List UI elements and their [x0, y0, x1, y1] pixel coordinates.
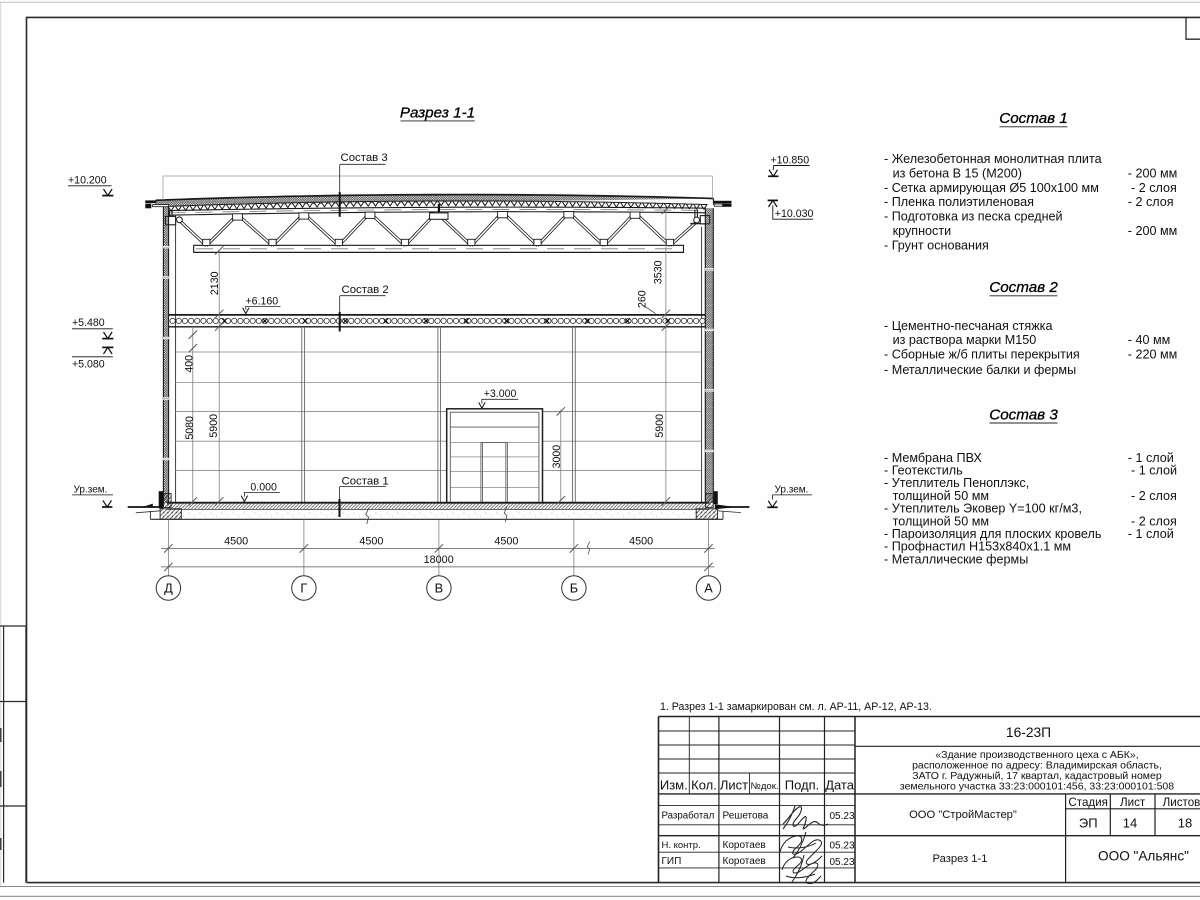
svg-text:- 1 слой: - 1 слой	[1131, 464, 1177, 478]
svg-text:Разрез 1-1: Разрез 1-1	[400, 105, 475, 122]
svg-text:14: 14	[1123, 816, 1137, 831]
svg-text:Состав 1: Состав 1	[342, 475, 389, 487]
svg-text:Коротаев: Коротаев	[723, 856, 766, 867]
svg-text:Ур.зем.: Ур.зем.	[74, 485, 108, 496]
svg-text:Б: Б	[570, 581, 578, 596]
svg-text:0.000: 0.000	[250, 481, 277, 493]
svg-text:Состав 3: Состав 3	[989, 406, 1058, 423]
svg-text:5900: 5900	[654, 414, 666, 438]
svg-text:+5.480: +5.480	[72, 317, 105, 329]
svg-text:Разрез 1-1: Разрез 1-1	[933, 853, 988, 865]
svg-text:- Цементно-песчаная стяжка: - Цементно-песчаная стяжка	[884, 319, 1052, 333]
svg-text:ООО "СтройМастер": ООО "СтройМастер"	[909, 809, 1017, 821]
svg-text:Д: Д	[164, 581, 173, 596]
svg-text:Состав 2: Состав 2	[342, 284, 389, 296]
svg-text:- Сборные ж/б плиты перекрытия: - Сборные ж/б плиты перекрытия	[884, 348, 1080, 362]
svg-text:Н. контр.: Н. контр.	[662, 840, 701, 851]
svg-text:Дата: Дата	[825, 778, 855, 793]
svg-text:Состав 1: Состав 1	[999, 110, 1068, 127]
svg-text:16-23П: 16-23П	[1006, 725, 1051, 740]
svg-text:- 1 слой: - 1 слой	[1128, 527, 1174, 541]
svg-text:земельного участка 33:23:00010: земельного участка 33:23:000101:456, 33:…	[900, 780, 1174, 792]
svg-text:- Грунт основания: - Грунт основания	[884, 238, 989, 252]
svg-text:- 200 мм: - 200 мм	[1128, 166, 1178, 180]
svg-text:из бетона В 15 (М200): из бетона В 15 (М200)	[893, 166, 1022, 180]
svg-text:5080: 5080	[184, 416, 196, 440]
svg-text:- 2 слоя: - 2 слоя	[1128, 195, 1174, 209]
svg-text:- Металлические балки и фермы: - Металлические балки и фермы	[884, 363, 1076, 377]
svg-text:+3.000: +3.000	[484, 388, 517, 400]
svg-text:Изм.: Изм.	[660, 778, 688, 793]
svg-text:Листов: Листов	[1163, 796, 1200, 809]
svg-text:- Подготовка из песка средней: - Подготовка из песка средней	[884, 210, 1063, 224]
svg-text:Разработал: Разработал	[662, 810, 715, 821]
svg-text:5900: 5900	[208, 414, 220, 438]
svg-text:1. Разрез 1-1 замаркирован см.: 1. Разрез 1-1 замаркирован см. л. АР-11,…	[660, 701, 932, 713]
svg-text:Ур.зем.: Ур.зем.	[775, 485, 809, 496]
svg-text:4500: 4500	[629, 536, 653, 548]
svg-text:ЭП: ЭП	[1079, 816, 1098, 831]
svg-text:4500: 4500	[359, 536, 383, 548]
svg-text:18: 18	[1178, 816, 1192, 831]
svg-text:4500: 4500	[494, 536, 518, 548]
svg-text:Кол.: Кол.	[691, 778, 717, 793]
svg-text:+10.850: +10.850	[771, 154, 810, 166]
svg-text:- 40 мм: - 40 мм	[1128, 333, 1171, 347]
svg-text:- Металлические фермы: - Металлические фермы	[884, 552, 1028, 566]
svg-text:4500: 4500	[224, 536, 248, 548]
svg-text:А: А	[704, 581, 713, 596]
svg-text:Лист: Лист	[1120, 796, 1146, 809]
svg-text:Коротаев: Коротаев	[723, 840, 766, 851]
svg-text:+10.030: +10.030	[775, 208, 814, 220]
svg-text:Г: Г	[300, 581, 307, 596]
svg-text:Состав 2: Состав 2	[989, 279, 1058, 296]
svg-text:2130: 2130	[209, 271, 221, 295]
svg-text:из раствора марки М150: из раствора марки М150	[893, 333, 1037, 347]
svg-text:- 220 мм: - 220 мм	[1128, 348, 1178, 362]
svg-text:- 2 слоя: - 2 слоя	[1131, 489, 1177, 503]
svg-text:В: В	[435, 581, 444, 596]
svg-text:+5.080: +5.080	[72, 358, 105, 370]
svg-text:260: 260	[636, 290, 648, 308]
svg-text:3000: 3000	[551, 445, 563, 469]
svg-text:- Железобетонная монолитная п: - Железобетонная монолитная плита	[884, 152, 1102, 166]
svg-text:Подп.: Подп.	[785, 778, 820, 793]
svg-text:- 2 слоя: - 2 слоя	[1131, 181, 1177, 195]
svg-text:- Пленка полиэтиленовая: - Пленка полиэтиленовая	[884, 195, 1034, 209]
svg-text:Состав 3: Состав 3	[341, 152, 388, 164]
svg-text:Решетова: Решетова	[723, 810, 769, 821]
svg-text:крупности: крупности	[893, 224, 952, 238]
svg-text:+10.200: +10.200	[68, 174, 107, 186]
svg-text:05.23: 05.23	[830, 811, 855, 822]
svg-text:05.23: 05.23	[830, 841, 855, 852]
svg-text:400: 400	[183, 355, 195, 373]
svg-text:Стадия: Стадия	[1068, 796, 1108, 809]
svg-text:- Сетка армирующая Ø5 100х100: - Сетка армирующая Ø5 100х100 мм	[884, 181, 1099, 195]
svg-text:ГИП: ГИП	[662, 856, 682, 867]
svg-text:ООО "Альянс": ООО "Альянс"	[1098, 848, 1189, 863]
svg-text:05.23: 05.23	[830, 857, 855, 868]
svg-text:3530: 3530	[653, 260, 665, 284]
svg-text:18000: 18000	[424, 554, 454, 566]
svg-text:Лист: Лист	[720, 778, 748, 793]
svg-text:- 200 мм: - 200 мм	[1128, 224, 1178, 238]
svg-text:+6.160: +6.160	[246, 296, 279, 308]
svg-text:№док.: №док.	[751, 781, 779, 792]
